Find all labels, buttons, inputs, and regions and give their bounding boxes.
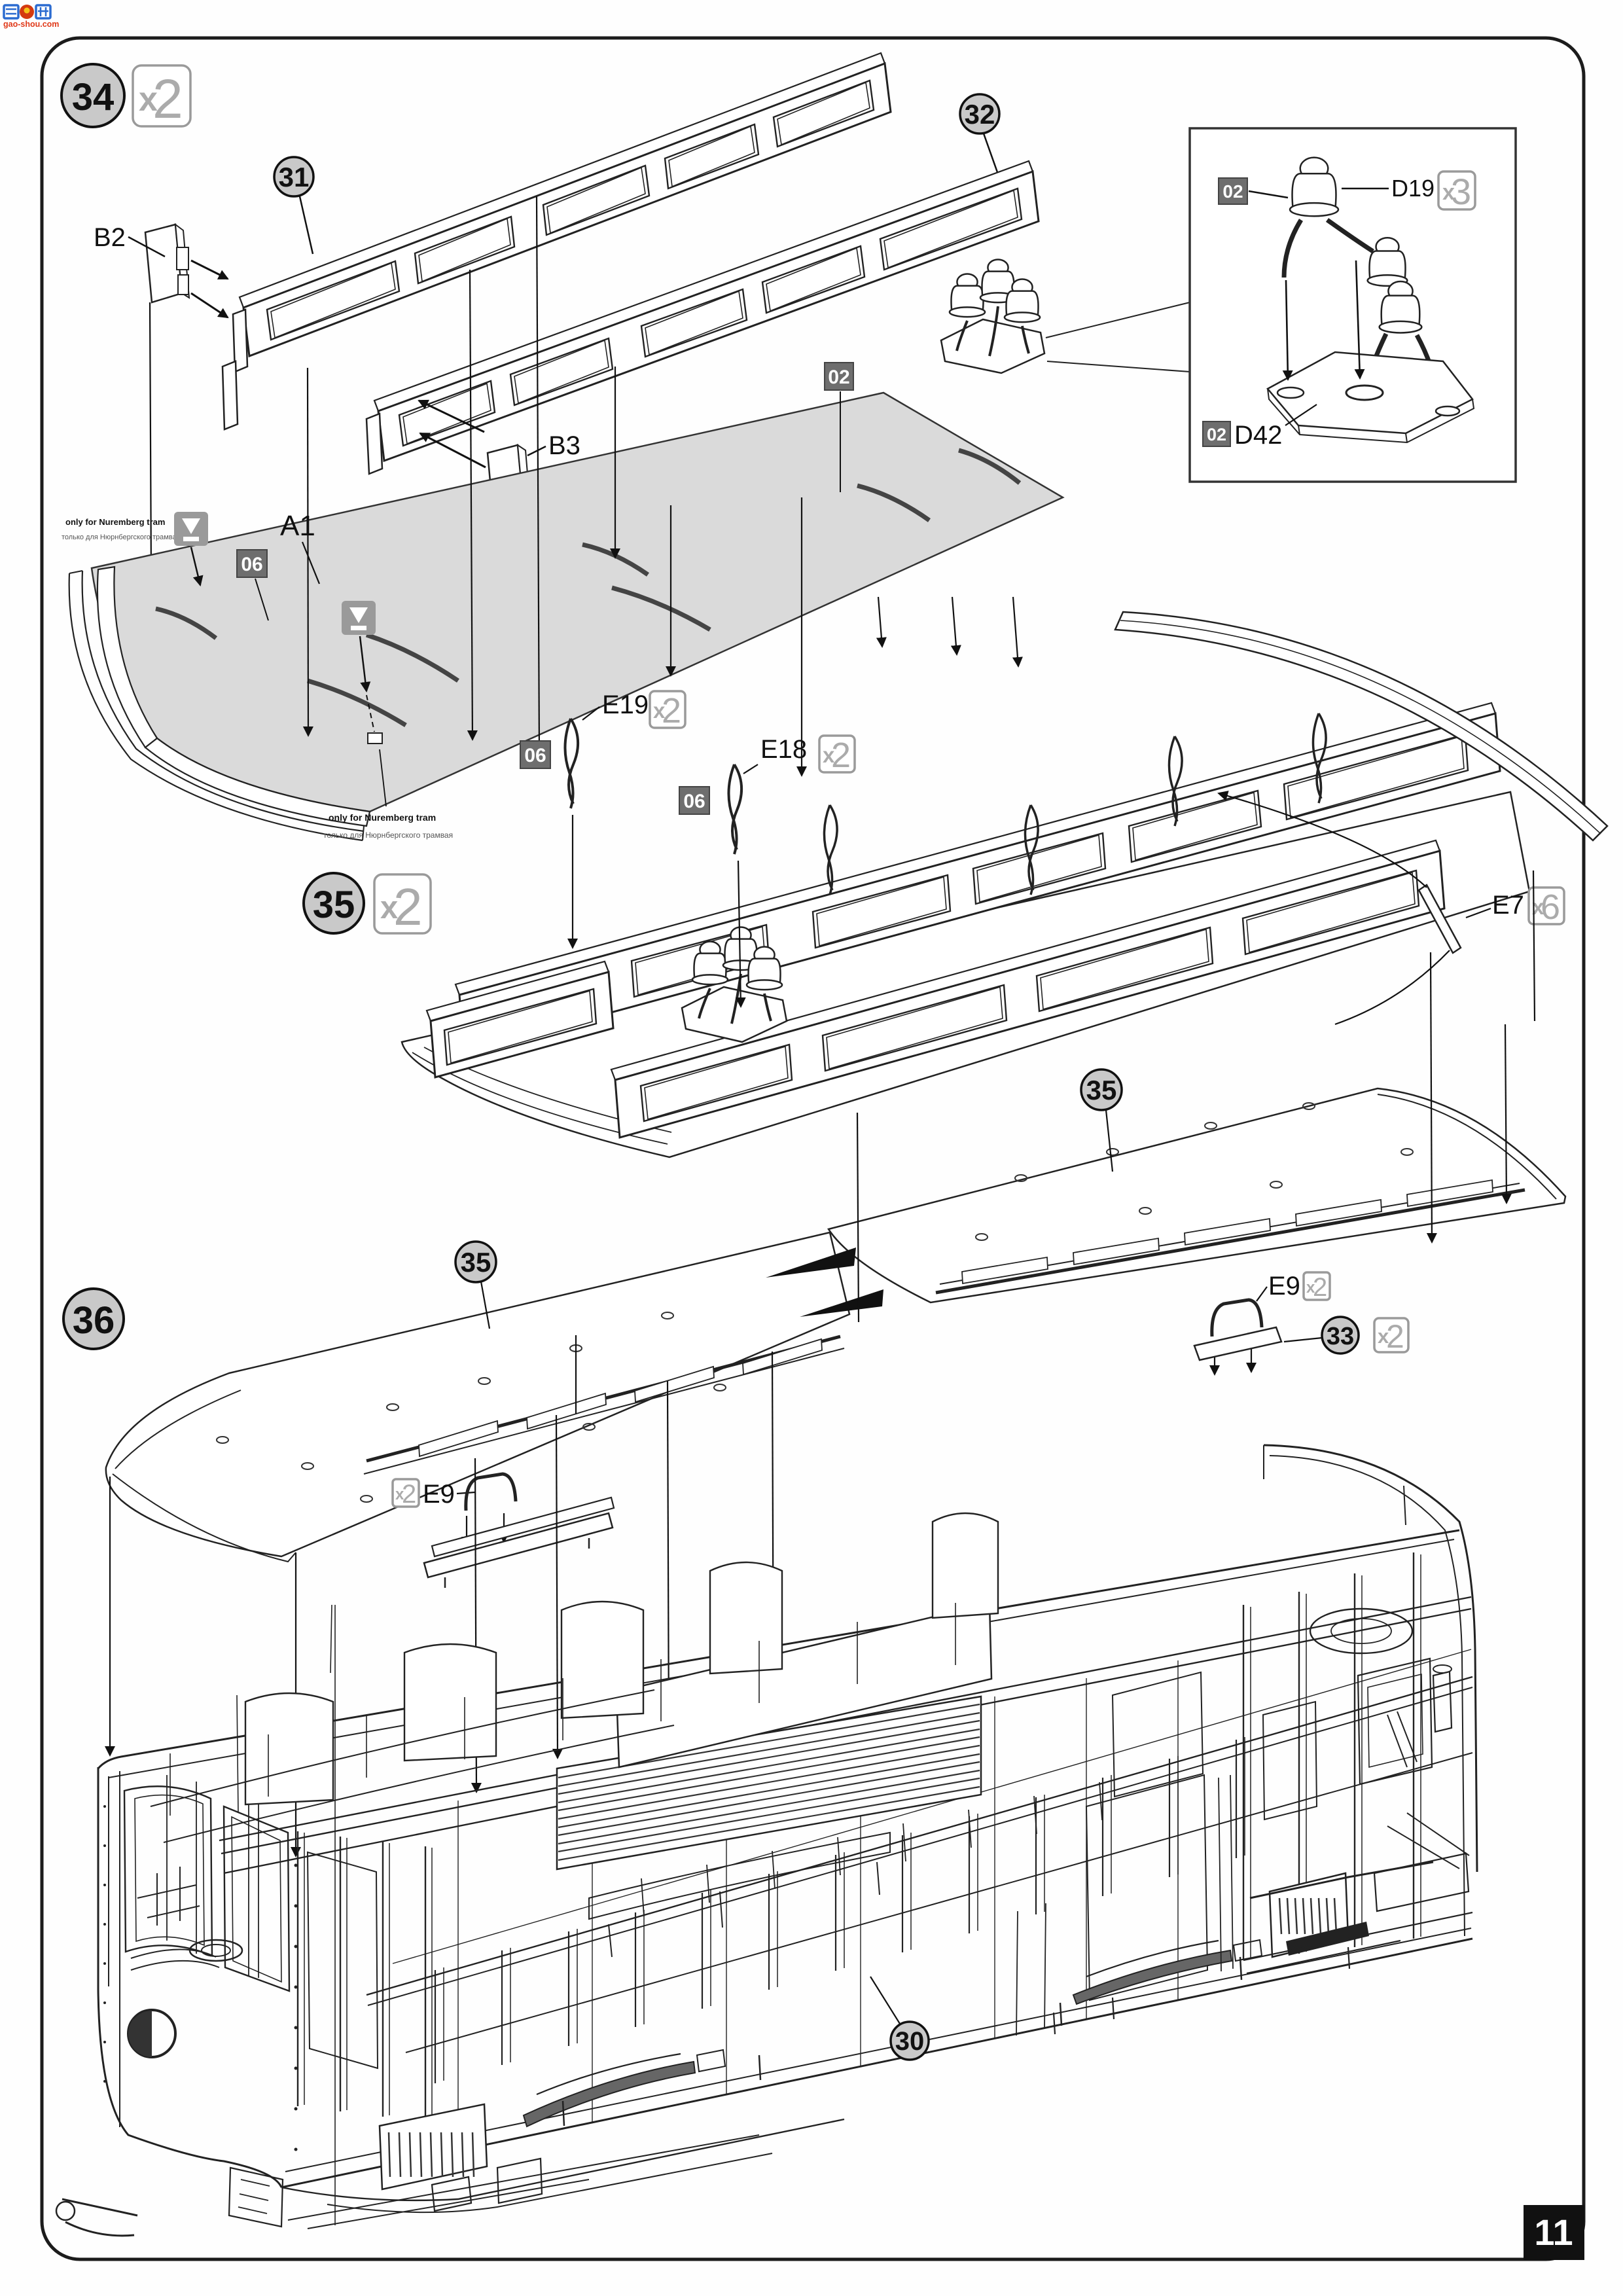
svg-text:2: 2 [393, 878, 423, 936]
svg-text:11: 11 [1534, 2212, 1573, 2253]
svg-text:6: 6 [1541, 888, 1560, 927]
svg-text:02: 02 [1207, 425, 1226, 444]
svg-text:35: 35 [461, 1247, 491, 1278]
svg-text:30: 30 [895, 2027, 925, 2056]
svg-text:2: 2 [1313, 1273, 1327, 1302]
svg-text:02: 02 [1222, 181, 1243, 202]
svg-text:E9: E9 [423, 1480, 455, 1509]
svg-text:E7: E7 [1492, 891, 1524, 920]
svg-text:only for Nuremberg tram: only for Nuremberg tram [65, 517, 165, 527]
svg-text:2: 2 [402, 1480, 416, 1509]
svg-text:B2: B2 [94, 223, 126, 252]
svg-text:2: 2 [662, 691, 681, 730]
svg-text:2: 2 [152, 68, 183, 130]
svg-text:36: 36 [73, 1299, 115, 1342]
svg-text:only for Nuremberg tram: only for Nuremberg tram [329, 812, 436, 823]
svg-text:только для Нюрнбергского трамв: только для Нюрнбергского трамвая [62, 533, 181, 541]
svg-text:35: 35 [313, 884, 355, 926]
svg-text:только для Нюрнбергского трамв: только для Нюрнбергского трамвая [323, 831, 453, 840]
svg-text:35: 35 [1086, 1075, 1117, 1105]
svg-text:33: 33 [1327, 1323, 1354, 1350]
svg-text:06: 06 [241, 554, 262, 575]
svg-text:34: 34 [72, 76, 115, 118]
svg-text:32: 32 [965, 99, 995, 130]
svg-text:gao-shou.com: gao-shou.com [3, 20, 59, 29]
svg-text:E19: E19 [602, 691, 649, 719]
svg-text:06: 06 [524, 745, 546, 766]
svg-text:D42: D42 [1234, 421, 1282, 450]
svg-text:2: 2 [1386, 1318, 1404, 1355]
svg-text:A1: A1 [280, 510, 315, 542]
svg-text:E9: E9 [1268, 1272, 1300, 1300]
svg-text:02: 02 [828, 367, 849, 388]
svg-text:D19: D19 [1391, 175, 1435, 202]
svg-text:2: 2 [831, 736, 851, 775]
svg-text:3: 3 [1451, 171, 1471, 212]
svg-text:06: 06 [683, 791, 705, 812]
svg-text:31: 31 [279, 162, 310, 192]
svg-text:E18: E18 [760, 735, 807, 764]
svg-text:B3: B3 [548, 431, 580, 460]
